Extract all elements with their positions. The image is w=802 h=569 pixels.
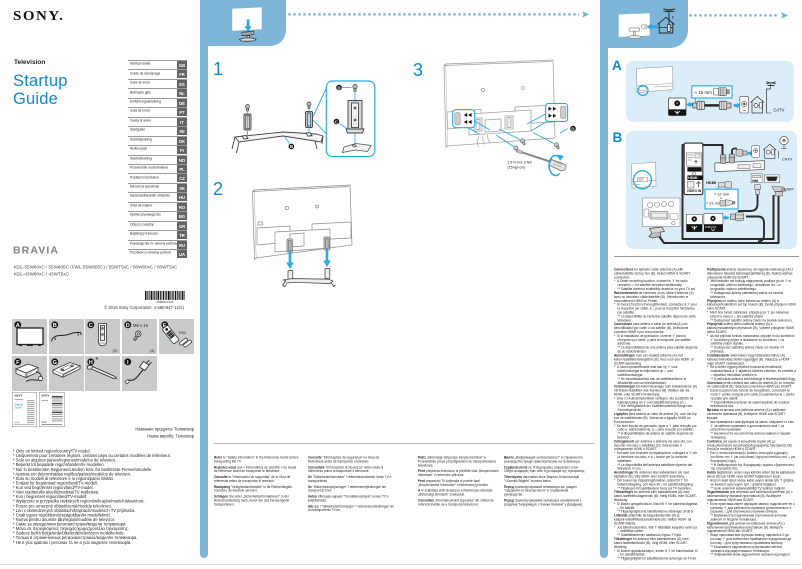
svg-text:RO: RO bbox=[178, 205, 185, 210]
svg-text:≈ 12 mm: ≈ 12 mm bbox=[714, 192, 729, 197]
svg-text:RU: RU bbox=[178, 242, 184, 247]
svg-text:B: B bbox=[52, 323, 56, 329]
svg-text:CATV: CATV bbox=[782, 157, 792, 162]
svg-text:GR: GR bbox=[178, 224, 184, 229]
svg-text:(2): (2) bbox=[113, 348, 119, 353]
svg-text:Guide: Guide bbox=[15, 405, 22, 409]
svg-text:1.5 N·m/1.5 Nm: 1.5 N·m/1.5 Nm bbox=[508, 161, 533, 165]
svg-text:NL: NL bbox=[179, 91, 185, 96]
svg-text:SCART: SCART bbox=[781, 187, 795, 192]
svg-text:D: D bbox=[126, 323, 130, 329]
svg-text:GB: GB bbox=[178, 63, 184, 68]
svg-text:HDMI: HDMI bbox=[688, 176, 697, 180]
svg-text:SK: SK bbox=[179, 186, 185, 191]
svg-text:SE: SE bbox=[179, 129, 185, 134]
svg-text:HDMI: HDMI bbox=[752, 181, 758, 183]
svg-text:PL: PL bbox=[179, 167, 185, 172]
svg-text:M6 x 16: M6 x 16 bbox=[133, 323, 149, 328]
svg-text:FR: FR bbox=[179, 72, 185, 77]
svg-text:NO: NO bbox=[178, 157, 185, 162]
svg-text:≈ 21 mm: ≈ 21 mm bbox=[706, 201, 721, 206]
svg-text:PT: PT bbox=[179, 110, 185, 115]
svg-text:DK: DK bbox=[178, 138, 184, 143]
svg-text:F: F bbox=[16, 360, 20, 366]
svg-text:HU: HU bbox=[178, 195, 184, 200]
svg-text:UA: UA bbox=[178, 252, 184, 257]
svg-text:SONY: SONY bbox=[42, 395, 50, 398]
svg-text:4580947121: 4580947121 bbox=[156, 300, 173, 304]
svg-text:HDMI: HDMI bbox=[706, 180, 716, 185]
svg-text:TR: TR bbox=[179, 233, 185, 238]
svg-text:C: C bbox=[89, 323, 93, 329]
svg-text:IT: IT bbox=[180, 120, 184, 125]
svg-text:BG: BG bbox=[178, 214, 184, 219]
svg-text:≈ 16 mm: ≈ 16 mm bbox=[695, 90, 712, 95]
svg-text:(15 kgf·cm): (15 kgf·cm) bbox=[508, 166, 526, 170]
svg-text:B: B bbox=[290, 144, 293, 149]
svg-text:D: D bbox=[571, 126, 574, 131]
svg-text:VIDEO IN: VIDEO IN bbox=[687, 189, 702, 193]
svg-text:SONY: SONY bbox=[15, 395, 23, 398]
svg-text:CATV: CATV bbox=[774, 108, 785, 113]
svg-text:G: G bbox=[52, 360, 56, 366]
svg-text:R03: R03 bbox=[179, 331, 186, 335]
svg-text:SUB.OUT: SUB.OUT bbox=[705, 225, 717, 229]
svg-text:CZ: CZ bbox=[179, 176, 185, 181]
svg-text:D: D bbox=[337, 85, 340, 90]
svg-text:DE: DE bbox=[179, 101, 185, 106]
svg-text:FI: FI bbox=[180, 148, 184, 153]
svg-text:ES: ES bbox=[179, 82, 185, 87]
svg-text:(4): (4) bbox=[150, 348, 156, 353]
